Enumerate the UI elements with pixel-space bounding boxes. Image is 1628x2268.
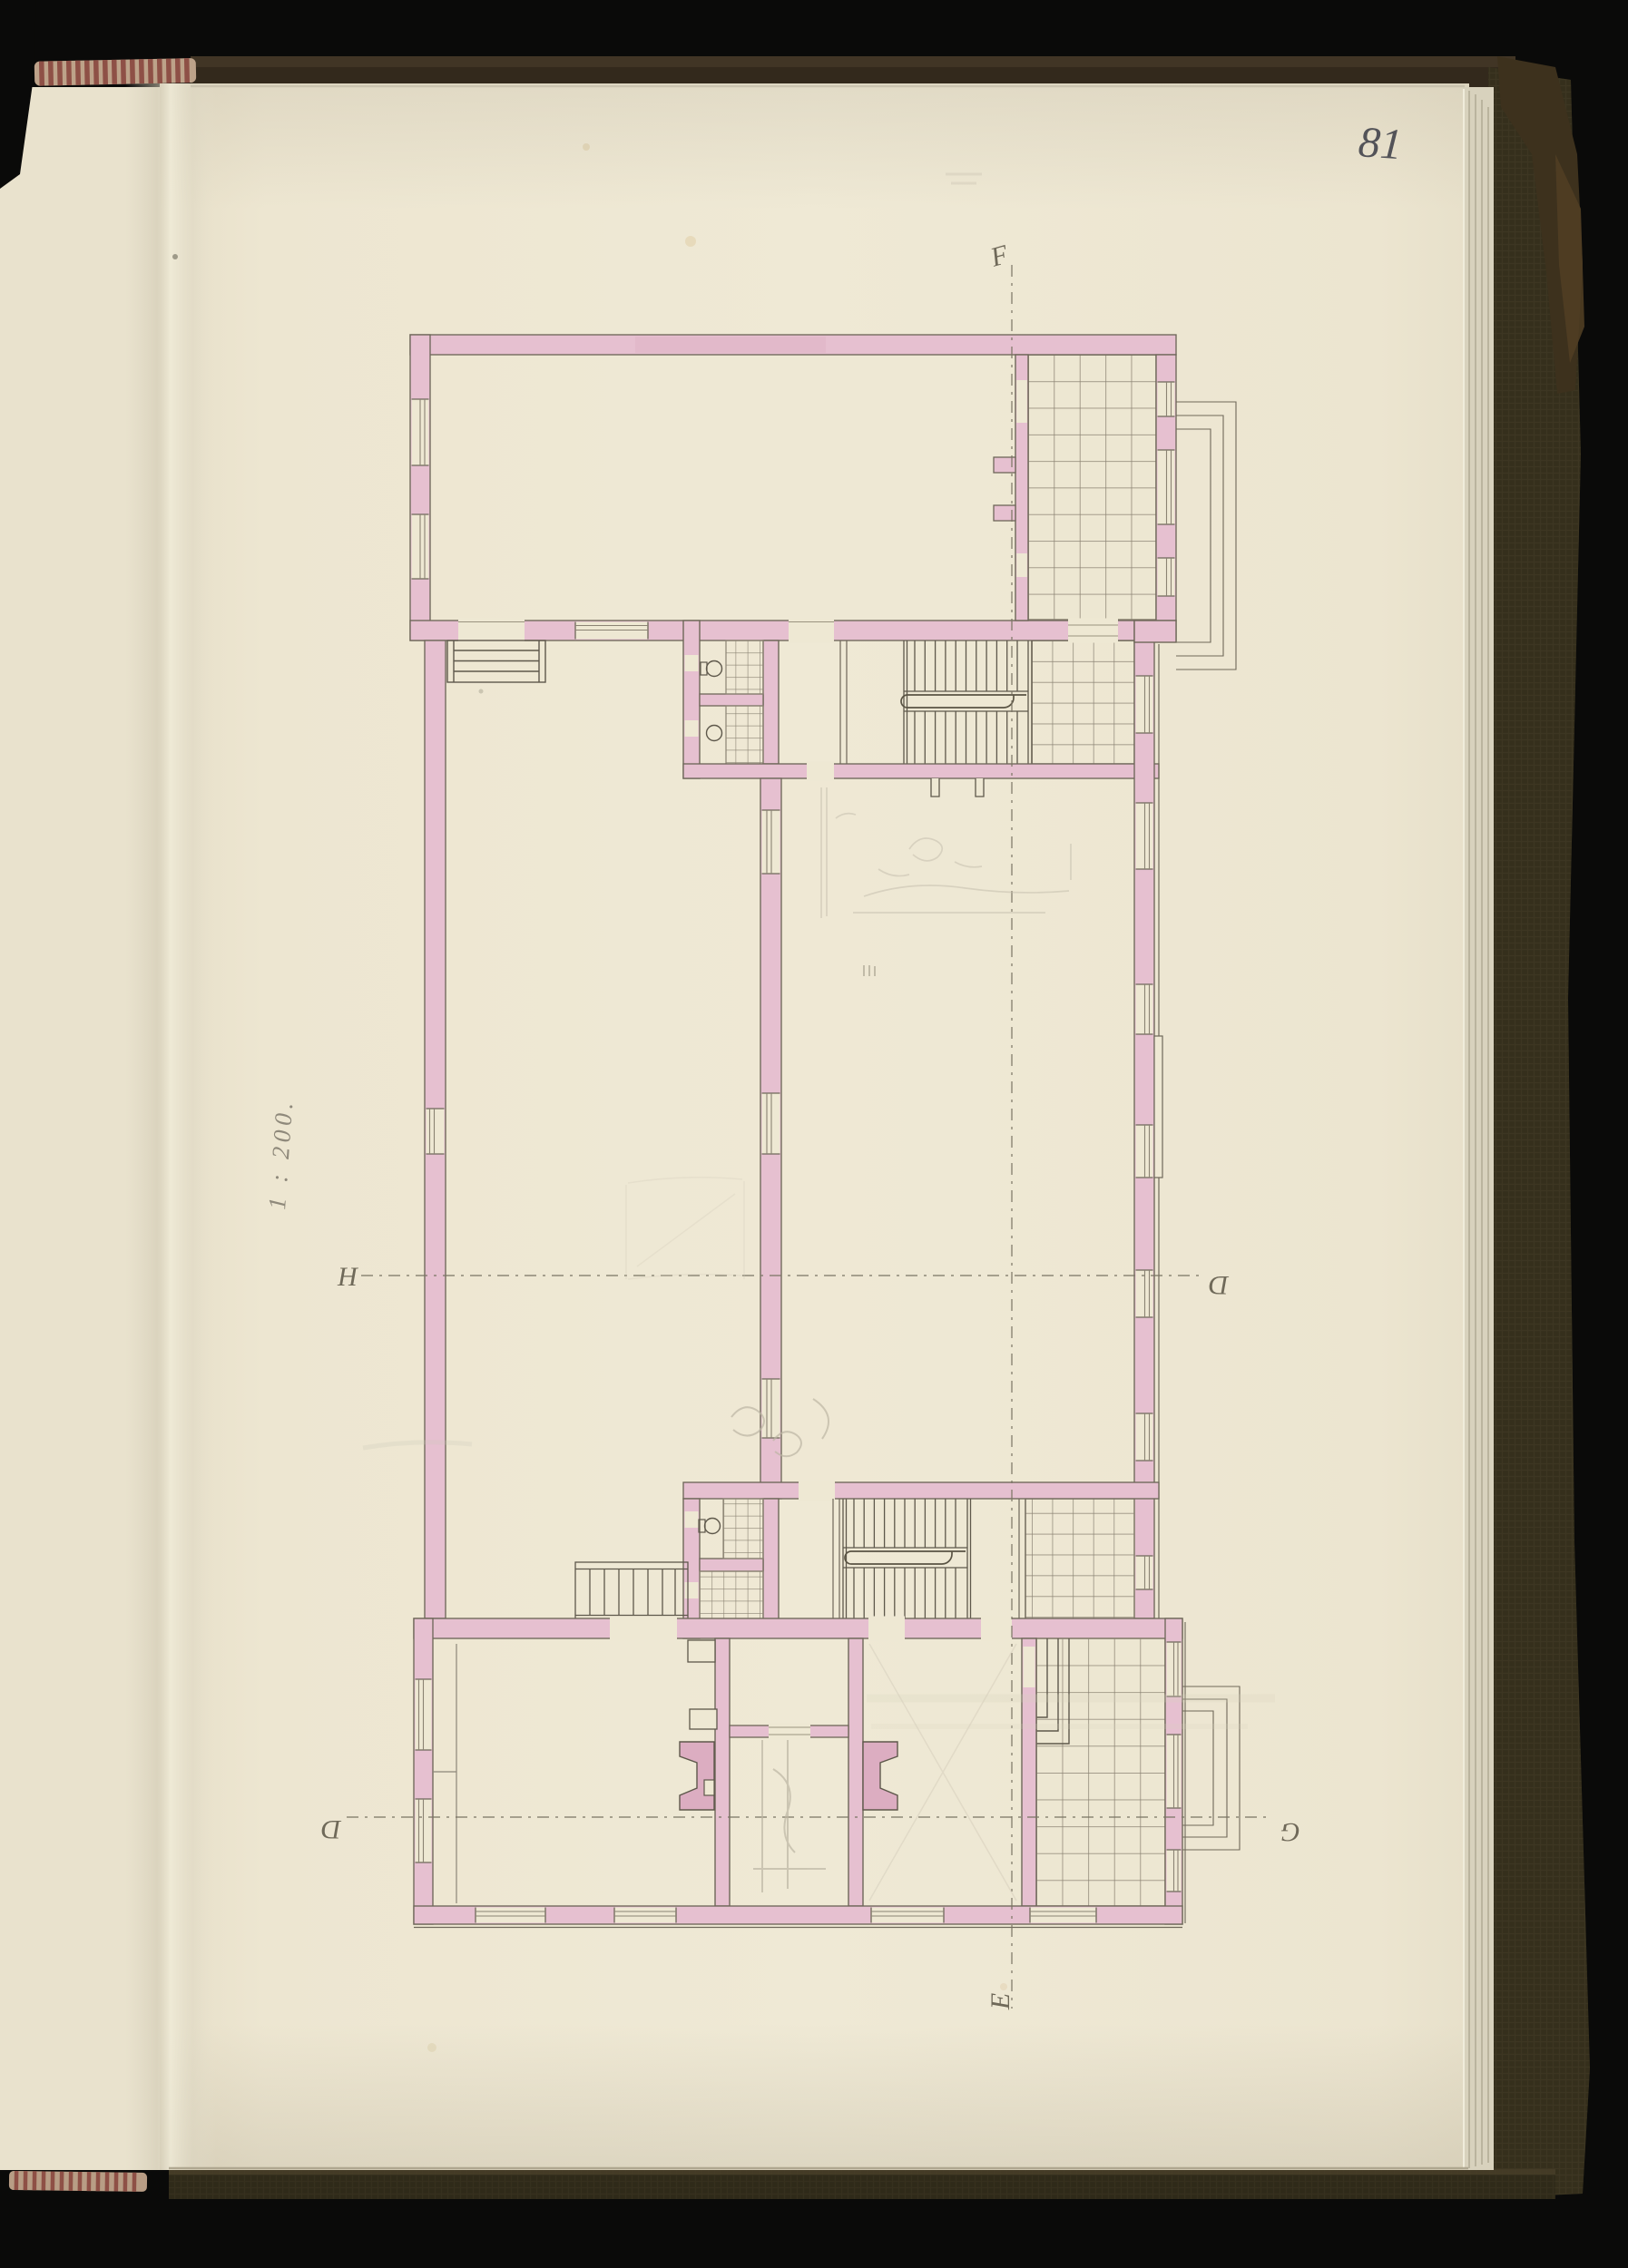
svg-text:G: G <box>1280 1817 1300 1847</box>
svg-text:H: H <box>337 1262 359 1292</box>
svg-text:D: D <box>1209 1270 1230 1300</box>
svg-text:81: 81 <box>1357 118 1404 169</box>
svg-text:D: D <box>321 1814 342 1844</box>
svg-text:E: E <box>986 1993 1015 2010</box>
